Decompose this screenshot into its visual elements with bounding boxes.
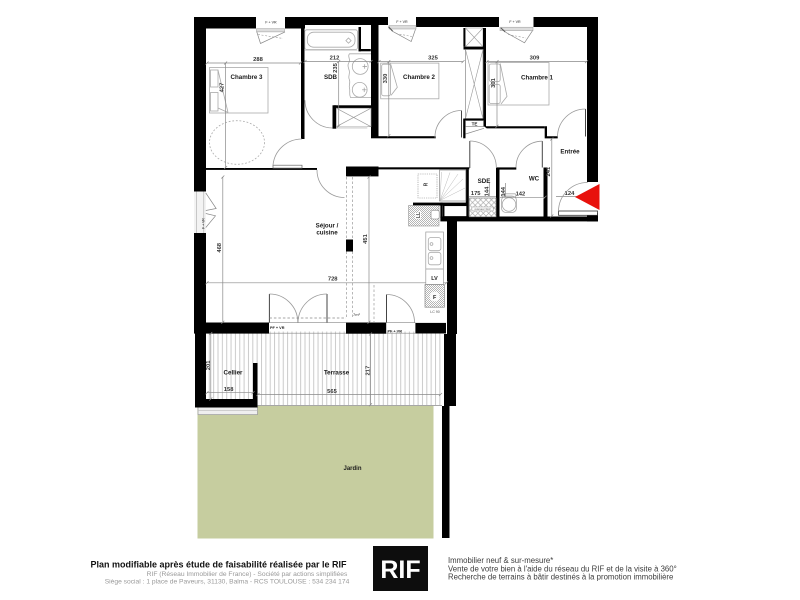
svg-text:288: 288 <box>253 57 263 63</box>
svg-text:SDE: SDE <box>478 178 491 185</box>
svg-text:cuisine: cuisine <box>316 230 338 237</box>
svg-text:LL: LL <box>416 212 422 218</box>
svg-text:565: 565 <box>327 389 337 395</box>
svg-text:175: 175 <box>471 191 481 197</box>
svg-text:144: 144 <box>501 186 507 196</box>
svg-text:7m²: 7m² <box>353 312 361 317</box>
svg-text:F + VR: F + VR <box>265 21 277 25</box>
svg-text:212: 212 <box>330 56 340 62</box>
svg-text:LV: LV <box>431 276 438 282</box>
svg-text:Cellier: Cellier <box>224 370 244 377</box>
svg-text:309: 309 <box>530 56 540 62</box>
svg-text:325: 325 <box>428 56 438 62</box>
svg-text:235: 235 <box>333 62 339 72</box>
svg-text:receveur 3m3: receveur 3m3 <box>475 207 491 211</box>
svg-text:728: 728 <box>328 277 338 283</box>
svg-text:F + VR: F + VR <box>202 218 206 229</box>
svg-text:RIF: RIF <box>380 556 420 584</box>
svg-text:Séjour /: Séjour / <box>316 223 339 230</box>
svg-text:468: 468 <box>217 242 223 252</box>
svg-text:330: 330 <box>383 74 389 84</box>
svg-text:451: 451 <box>363 233 369 243</box>
svg-text:WC: WC <box>529 176 540 183</box>
svg-text:F + VR: F + VR <box>509 20 521 24</box>
svg-text:142: 142 <box>516 192 526 198</box>
svg-text:158: 158 <box>224 387 234 393</box>
svg-text:427: 427 <box>220 83 226 93</box>
svg-text:Chambre 3: Chambre 3 <box>231 74 264 81</box>
svg-text:RIF (Réseau Immobilier de Fran: RIF (Réseau Immobilier de France) - Soci… <box>147 571 348 578</box>
svg-text:Siège social : 1 place de Pave: Siège social : 1 place de Paveurs, 31130… <box>105 578 350 585</box>
svg-text:Terrasse: Terrasse <box>324 370 350 377</box>
svg-text:Recherche de terrains à bâtir: Recherche de terrains à bâtir destinés à… <box>448 573 673 582</box>
svg-text:Jardin: Jardin <box>343 466 361 472</box>
svg-text:144: 144 <box>485 186 491 196</box>
svg-text:Entrée: Entrée <box>560 149 580 156</box>
svg-text:301: 301 <box>491 77 497 87</box>
svg-text:F + VR: F + VR <box>396 20 408 24</box>
svg-text:TE: TE <box>472 122 478 127</box>
svg-text:PF + VR: PF + VR <box>388 329 403 333</box>
svg-text:PF + VR: PF + VR <box>270 326 285 330</box>
svg-text:Chambre 2: Chambre 2 <box>403 74 436 81</box>
svg-text:SDB: SDB <box>324 74 338 81</box>
svg-text:217: 217 <box>366 366 372 376</box>
svg-text:241: 241 <box>546 166 552 176</box>
svg-text:Plan modifiable après étude de: Plan modifiable après étude de faisabili… <box>90 560 347 570</box>
svg-text:201: 201 <box>206 360 212 370</box>
svg-text:LC 90: LC 90 <box>430 310 440 314</box>
svg-text:R: R <box>424 182 430 186</box>
